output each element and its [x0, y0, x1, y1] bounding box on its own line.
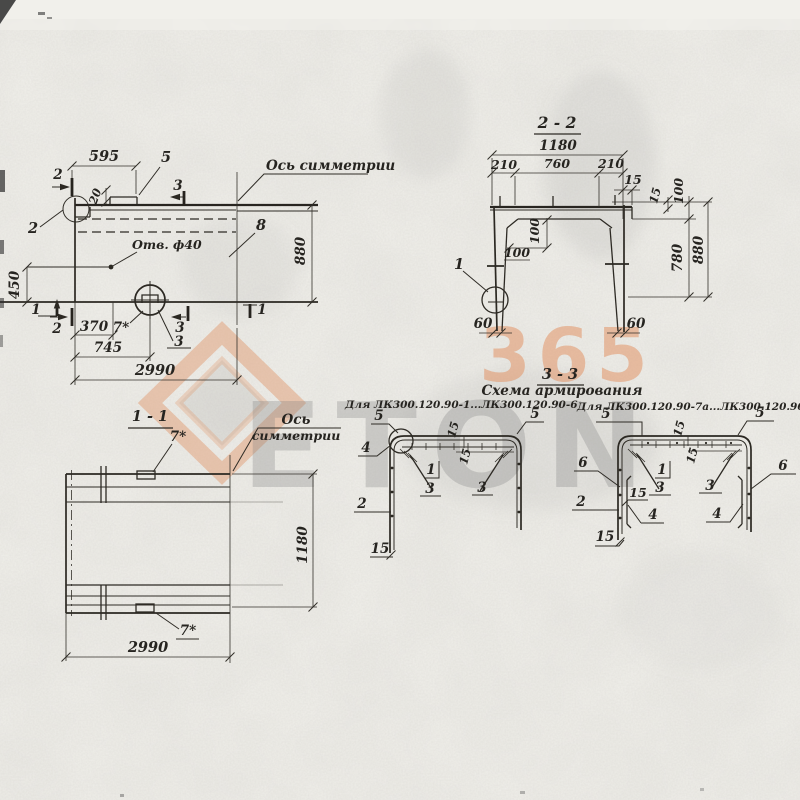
- sec22-dim-780-label: 780: [670, 243, 686, 272]
- scheme-right-c2: 2: [575, 494, 585, 510]
- plan-callout-3-hole-label: 3: [174, 334, 183, 350]
- plan-dim-370-label: 370: [80, 319, 109, 335]
- plan-dim-2990-label: 2990: [134, 362, 175, 379]
- sec22-dim-100-right-label: 100: [671, 178, 686, 204]
- sec22-dim-15-top-label: 15: [624, 172, 641, 187]
- plan-callout-2-left-label: 2: [27, 220, 38, 237]
- sec11-axis-label-line1: Ось: [282, 412, 311, 428]
- plan-mark-3-top-label: 3: [173, 178, 182, 194]
- scheme-right-c5-right: 5: [755, 405, 764, 421]
- plan-axis-label: Ось симметрии: [266, 158, 395, 174]
- blueprint-scan-page: ETON 365 595 20 5 Ось: [0, 0, 800, 800]
- sec11-dim-1180-label: 1180: [295, 526, 311, 564]
- plan-dim-745-label: 745: [94, 340, 122, 356]
- scheme-right-c6-left: 6: [578, 455, 588, 471]
- sec22-dim-60-left-label: 60: [474, 316, 493, 332]
- scheme-right-c3-left: 3: [655, 480, 664, 496]
- sec22-dim-1180-label: 1180: [539, 138, 577, 154]
- scheme-left-c4: 4: [361, 440, 370, 456]
- plan-mark-1-right-label: 1: [257, 302, 266, 318]
- sec22-dim-100-mid-b-label: 100: [504, 245, 530, 260]
- sec11-axis-label-line2: симметрии: [252, 428, 341, 443]
- sec22-dim-100-mid-a-label: 100: [527, 218, 542, 244]
- section-2-2-title: 2 - 2: [537, 113, 577, 132]
- scheme-left-c1: 1: [426, 462, 435, 478]
- drawing-canvas: ETON 365 595 20 5 Ось: [0, 0, 800, 800]
- section-1-1-title: 1 - 1: [132, 408, 168, 425]
- plan-hole-label: Отв. ф40: [132, 237, 202, 252]
- plan-mark-2-bottom-label: 2: [51, 321, 61, 337]
- plan-dim-450-label: 450: [7, 270, 23, 299]
- section-3-3-subtitle: Схема армирования: [482, 383, 643, 399]
- scheme-right-c4-left: 4: [648, 507, 657, 523]
- section-3-3-title: 3 - 3: [542, 366, 578, 383]
- scheme-left-c3-right: 3: [477, 480, 486, 496]
- sec22-dim-880-label: 880: [691, 235, 707, 264]
- scheme-left-c5-left: 5: [374, 408, 383, 424]
- scheme-right-c6-right: 6: [778, 458, 788, 474]
- scheme-right-c15-bottom: 15: [596, 529, 615, 545]
- plan-callout-5-label: 5: [161, 149, 171, 166]
- plan-mark-1-left-label: 1: [31, 302, 40, 318]
- scheme-right-c1: 1: [657, 462, 666, 478]
- sec11-callout-7-bottom-label: 7*: [180, 623, 196, 639]
- plan-mark-2-top-label: 2: [52, 167, 62, 183]
- scheme-right-c5-left: 5: [601, 406, 610, 422]
- scheme-right-c3-right: 3: [705, 478, 714, 494]
- plan-callout-7-label: 7*: [113, 320, 129, 336]
- sec22-dim-210-left-label: 210: [490, 157, 517, 172]
- scheme-left-c3-left: 3: [425, 481, 434, 497]
- sec22-dim-210-right-label: 210: [597, 156, 624, 171]
- scheme-right-c15-leg: 15: [629, 485, 646, 500]
- scheme-left-c2: 2: [356, 496, 366, 512]
- scheme-right-c4-right: 4: [712, 506, 721, 522]
- sec22-dim-760-label: 760: [544, 156, 570, 171]
- plan-dim-880-label: 880: [293, 236, 309, 265]
- sec11-dim-2990-label: 2990: [127, 639, 168, 656]
- plan-dim-595-label: 595: [89, 148, 119, 165]
- sec22-dim-60-right-label: 60: [627, 316, 646, 332]
- sec11-callout-7-top-label: 7*: [170, 429, 186, 445]
- scheme-left-c15-bottom: 15: [371, 541, 390, 557]
- scheme-left-c5-right: 5: [530, 406, 539, 422]
- sec22-callout-1-label: 1: [454, 256, 464, 273]
- plan-callout-8-label: 8: [256, 217, 266, 234]
